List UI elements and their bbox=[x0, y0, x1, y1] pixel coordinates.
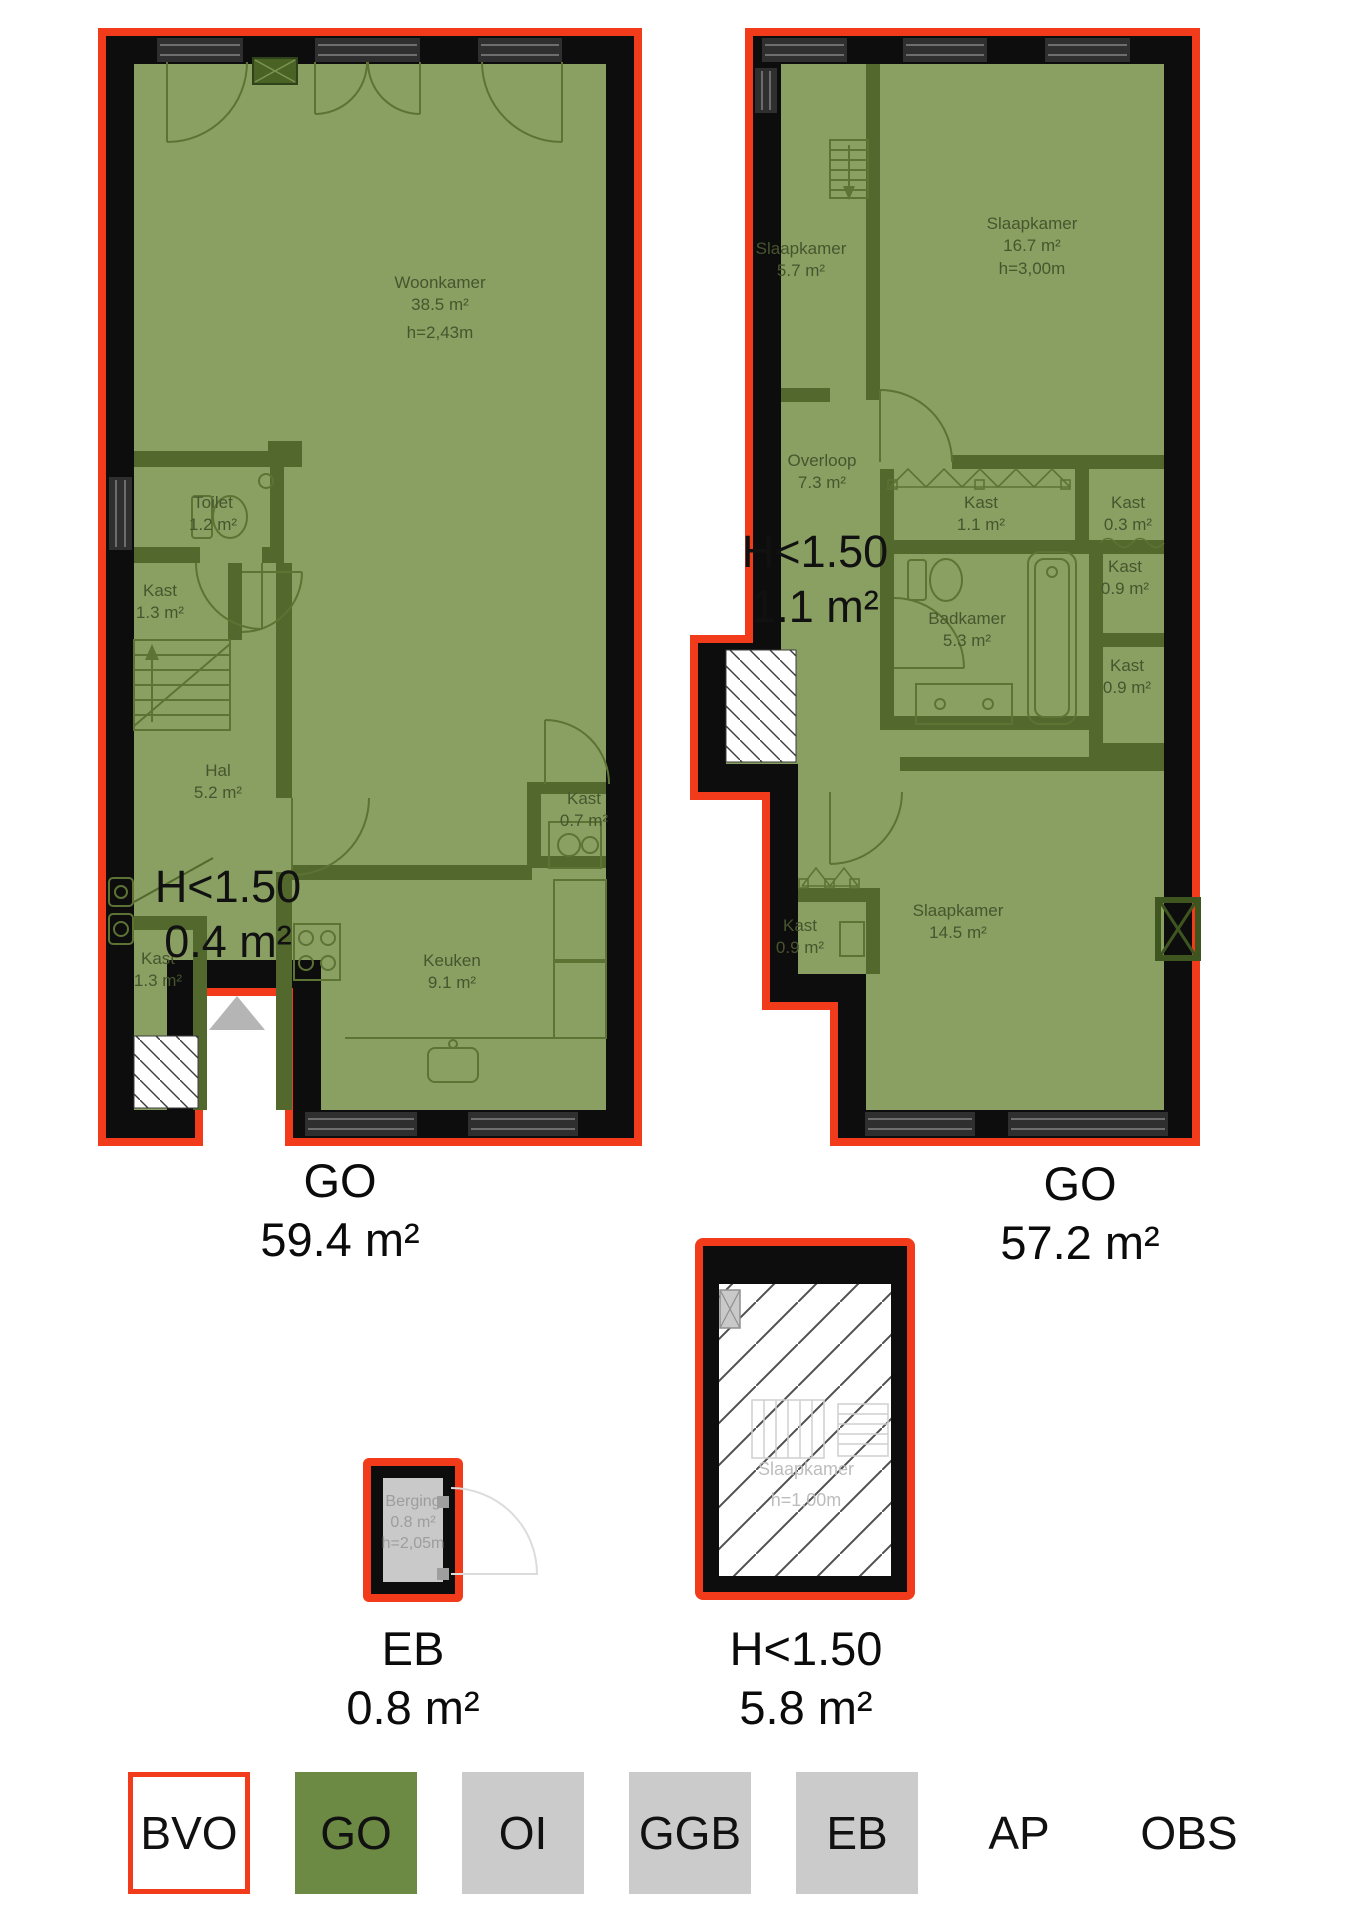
floorplan-drawing bbox=[0, 0, 1358, 1920]
floor1-plan bbox=[98, 28, 642, 1146]
floor1-void-hatched bbox=[134, 1036, 198, 1108]
floorplan-page: Woonkamer 38.5 m² h=2,43m Toilet 1.2 m² … bbox=[0, 0, 1358, 1920]
floor2-void-hatched bbox=[726, 650, 796, 762]
floor2-plan bbox=[690, 28, 1200, 1146]
legend-item-ggb: GGB bbox=[629, 1772, 751, 1894]
legend-item-bvo: BVO bbox=[128, 1772, 250, 1894]
floor1-windows-top bbox=[157, 38, 562, 62]
storage-hinge-top bbox=[437, 1496, 449, 1508]
legend-item-oi: OI bbox=[462, 1772, 584, 1894]
legend-item-go: GO bbox=[295, 1772, 417, 1894]
storage-hinge-bottom bbox=[437, 1568, 449, 1580]
attic-hatch bbox=[719, 1284, 891, 1576]
attic-plan bbox=[695, 1238, 915, 1600]
legend-item-obs: OBS bbox=[1122, 1772, 1256, 1894]
floor2-windows-top bbox=[762, 38, 1130, 62]
floor1-window-left bbox=[109, 477, 132, 550]
stairs-glyph-floor2 bbox=[830, 140, 868, 200]
floor2-windows-bottom bbox=[865, 1112, 1168, 1136]
storage-plan bbox=[363, 1458, 537, 1602]
entrance-arrow-icon bbox=[209, 996, 265, 1030]
legend-item-eb: EB bbox=[796, 1772, 918, 1894]
storage-door-arc bbox=[451, 1488, 537, 1574]
legend-item-ap: AP bbox=[958, 1772, 1080, 1894]
flue-icon bbox=[253, 58, 297, 84]
attic-window-icon bbox=[720, 1290, 740, 1328]
storage-eb-area bbox=[383, 1478, 443, 1582]
floor2-window-left bbox=[755, 68, 777, 113]
